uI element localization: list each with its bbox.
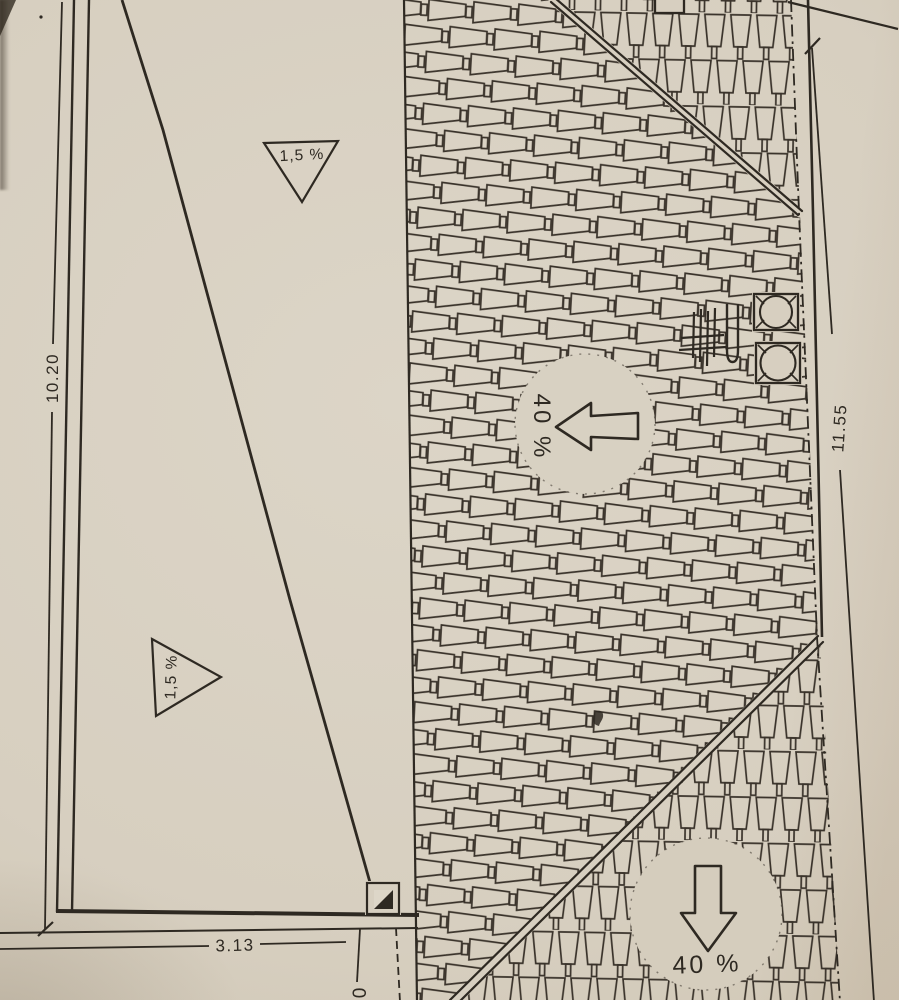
roof-plan-photo: 10.20 11.55 3.13 0 1,5 % 1,5 % 40 % 40 %	[0, 0, 899, 1000]
slope-arrow-left	[515, 354, 655, 494]
parapet-inner-line	[72, 0, 89, 912]
roof-drain-symbol	[365, 881, 401, 915]
hidden-edge-dashed	[396, 928, 400, 1000]
roof-plan-drawing	[0, 0, 899, 1000]
paper-speck	[39, 15, 42, 18]
flat-roof-bottom-edge	[56, 911, 419, 915]
photo-corner-shadow	[0, 0, 16, 36]
slope-arrow-down	[630, 838, 782, 990]
top-extension-line	[788, 2, 898, 29]
parapet-outer-line	[57, 0, 74, 912]
slope-triangle-lower	[152, 639, 221, 716]
chimney-symbol-1	[752, 292, 800, 332]
dimension-line-3-13	[0, 928, 418, 982]
flat-roof-area	[56, 0, 419, 1000]
chimney-symbol-2	[754, 341, 802, 385]
top-chimney-cropped	[655, 0, 684, 13]
tiled-roof	[404, 0, 840, 1000]
slope-triangle-top	[264, 141, 338, 202]
valley-line	[122, 0, 371, 886]
